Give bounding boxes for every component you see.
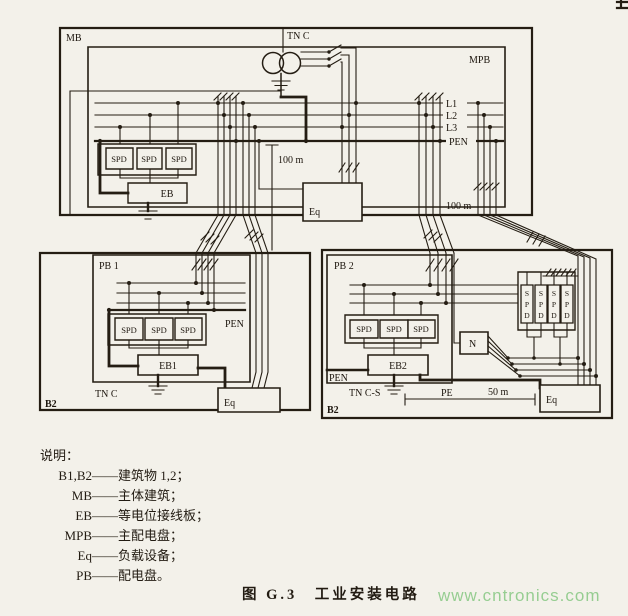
label-eb2: EB2: [389, 361, 407, 372]
label-eb1: EB1: [159, 361, 177, 372]
bus-labels: L1 L2 L3 PEN: [443, 97, 476, 148]
label-l1: L1: [446, 99, 457, 110]
dimension-100m-left: [266, 145, 278, 250]
n-busbar: [460, 332, 596, 378]
label-eq-mpb: Eq: [309, 207, 320, 218]
label-building2: B2: [327, 405, 339, 416]
label-pen-top: PEN: [449, 137, 468, 148]
spd-v3-p: P: [552, 300, 556, 309]
disconnect-switches-mpb: [301, 45, 359, 183]
label-n: N: [469, 339, 476, 350]
legend-item: EB——等电位接线板；: [40, 506, 209, 526]
label-pen-pb2: PEN: [329, 373, 348, 384]
label-spd-mpb-3: SPD: [171, 154, 187, 164]
earth-symbol-transformer: [272, 74, 290, 98]
feeder-bundle-eq1: [241, 101, 268, 388]
label-tn-c-top: TN C: [287, 31, 310, 42]
label-spd-pb1-1: SPD: [121, 325, 137, 335]
label-spd-mpb-1: SPD: [111, 154, 127, 164]
legend-item: B1,B2——建筑物 1,2；: [40, 466, 209, 486]
label-mpb: MPB: [469, 55, 490, 66]
label-pe: PE: [441, 388, 453, 399]
spd-v2-p: P: [539, 300, 543, 309]
dimension-50m-pe: [405, 394, 535, 405]
label-pb1: PB 1: [99, 261, 119, 272]
spd-v1-s: S: [525, 289, 529, 298]
bus-lines: [95, 103, 503, 141]
scanned-figure-page: L1 L2 L3 PEN MB TN C MPB SPD SPD SPD EB …: [0, 0, 628, 616]
label-spd-pb2-2: SPD: [386, 324, 402, 334]
label-l2: L2: [446, 111, 457, 122]
spd-v3-d: D: [551, 311, 557, 320]
scan-artifact: [617, 0, 628, 8]
label-spd-pb1-2: SPD: [151, 325, 167, 335]
spd-v4-s: S: [565, 289, 569, 298]
label-spd-mpb-2: SPD: [141, 154, 157, 164]
label-pen-pb1: PEN: [225, 319, 244, 330]
spd-v2-s: S: [539, 289, 543, 298]
spd-v1-d: D: [524, 311, 530, 320]
watermark: www.cntronics.com: [438, 586, 600, 606]
legend-title: 说明：: [40, 446, 209, 466]
pb2-buses: [350, 285, 518, 303]
spd-v2-d: D: [538, 311, 544, 320]
label-tn-c-s: TN C-S: [349, 388, 380, 399]
legend-item: MB——主体建筑；: [40, 486, 209, 506]
label-eq-pb2: Eq: [546, 395, 557, 406]
feeder-bundle-right: [474, 101, 598, 385]
circuit-diagram: L1 L2 L3 PEN MB TN C MPB SPD SPD SPD EB …: [0, 0, 628, 450]
spd-v4-p: P: [565, 300, 569, 309]
legend-item: PB——配电盘。: [40, 566, 209, 586]
spd-v3-s: S: [552, 289, 556, 298]
label-building1: B2: [45, 399, 57, 410]
label-eq-pb1: Eq: [224, 398, 235, 409]
legend-item: MPB——主配电盘；: [40, 526, 209, 546]
legend: 说明： B1,B2——建筑物 1,2； MB——主体建筑； EB——等电位接线板…: [40, 446, 209, 586]
label-spd-pb2-1: SPD: [356, 324, 372, 334]
label-spd-pb1-3: SPD: [180, 325, 196, 335]
label-pb2: PB 2: [334, 261, 354, 272]
label-spd-pb2-3: SPD: [413, 324, 429, 334]
label-tn-c-pb1: TN C: [95, 389, 118, 400]
spd-v1-p: P: [525, 300, 529, 309]
label-l3: L3: [446, 123, 457, 134]
spd-v4-d: D: [564, 311, 570, 320]
earth-symbol-eb2: [385, 375, 403, 394]
label-100m-left: 100 m: [278, 155, 304, 166]
label-eb: EB: [161, 189, 174, 200]
label-mb: MB: [66, 33, 82, 44]
figure-caption: 图 G.3 工业安装电路: [242, 583, 420, 604]
spd-array-pb1: [108, 281, 206, 355]
earth-symbol-eb1: [149, 375, 167, 394]
feeder-bundle-pb1: [196, 93, 239, 253]
legend-item: Eq——负载设备；: [40, 546, 209, 566]
label-50m: 50 m: [488, 387, 509, 398]
earth-symbol-eb: [139, 203, 157, 219]
label-100m-right: 100 m: [446, 201, 472, 212]
